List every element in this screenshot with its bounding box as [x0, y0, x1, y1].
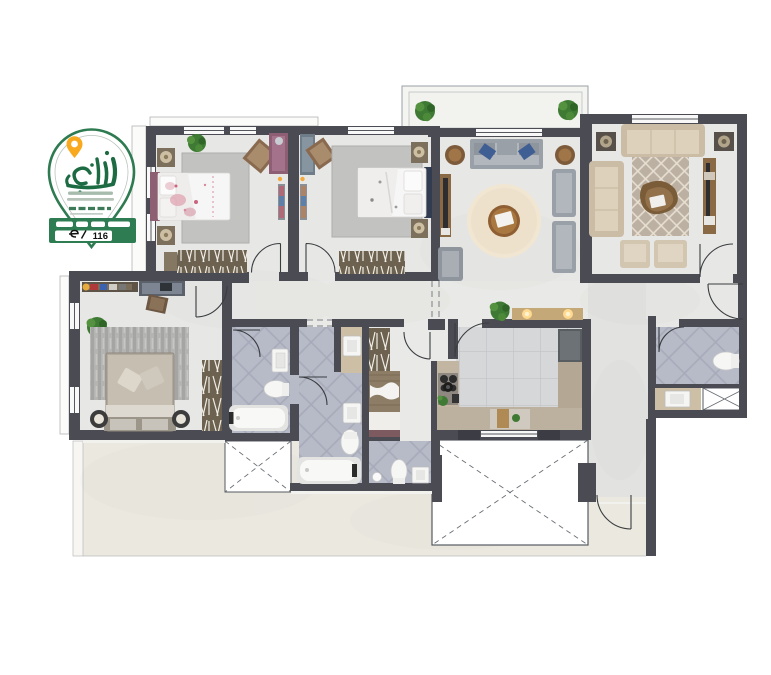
svg-text:116: 116 — [93, 231, 108, 242]
